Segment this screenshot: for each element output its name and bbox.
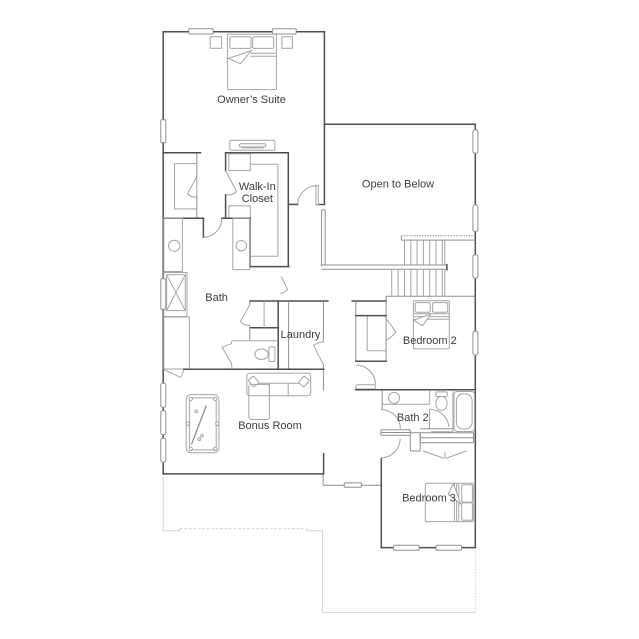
svg-text:Bedroom 2: Bedroom 2 <box>403 335 457 347</box>
svg-text:Bedroom 3: Bedroom 3 <box>402 492 456 504</box>
svg-text:Walk-In: Walk-In <box>239 181 276 193</box>
svg-text:Owner’s Suite: Owner’s Suite <box>217 94 286 106</box>
svg-text:Laundry: Laundry <box>281 329 321 341</box>
svg-text:Bonus Room: Bonus Room <box>238 420 302 432</box>
svg-text:Open to Below: Open to Below <box>362 179 434 191</box>
svg-text:Closet: Closet <box>242 193 273 205</box>
svg-text:Bath: Bath <box>205 292 228 304</box>
svg-text:Bath 2: Bath 2 <box>397 412 429 424</box>
